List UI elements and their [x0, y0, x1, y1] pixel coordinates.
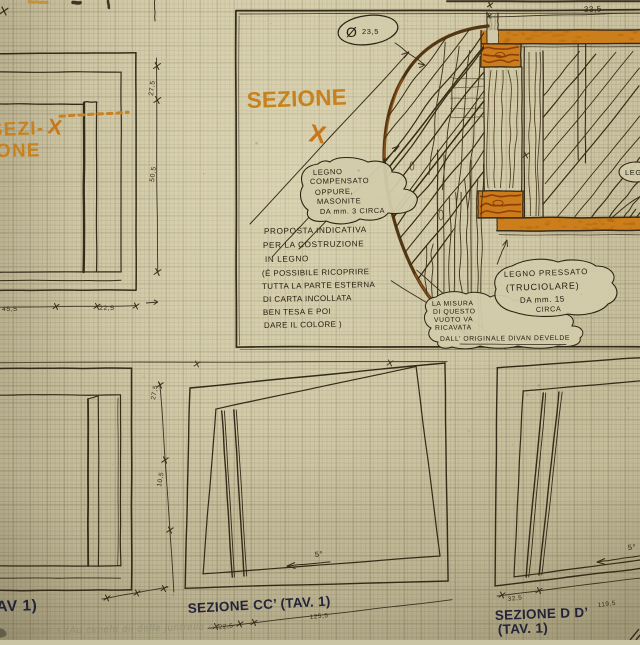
svg-text:IN LEGNO: IN LEGNO — [265, 254, 309, 264]
svg-text:DA mm. 3 CIRCA: DA mm. 3 CIRCA — [320, 206, 385, 216]
svg-text:LEG: LEG — [625, 168, 640, 177]
svg-text:ONE: ONE — [0, 140, 41, 162]
svg-text:Ø: Ø — [346, 24, 358, 40]
svg-text:DARE IL COLORE ): DARE IL COLORE ) — [264, 320, 342, 330]
svg-text:DALL’ ORIGINALE DIVAN DEVELDE: DALL’ ORIGINALE DIVAN DEVELDE — [440, 335, 570, 343]
svg-text:5°: 5° — [315, 549, 324, 559]
svg-text:SEZIONE: SEZIONE — [246, 85, 347, 113]
svg-text:23,5: 23,5 — [362, 27, 379, 36]
svg-text:RICAVATA: RICAVATA — [435, 324, 472, 332]
svg-text:5°: 5° — [628, 542, 637, 552]
svg-text:33,5: 33,5 — [584, 4, 602, 14]
svg-text:BEN TESA E POI: BEN TESA E POI — [263, 307, 331, 317]
svg-text:DI CARTA INCOLLATA: DI CARTA INCOLLATA — [263, 293, 352, 304]
svg-text:MASONITE: MASONITE — [317, 196, 362, 206]
svg-text:PER LA COSTRUZIONE: PER LA COSTRUZIONE — [263, 239, 364, 250]
svg-text:LA MISURA: LA MISURA — [432, 300, 474, 308]
svg-text:22,5: 22,5 — [99, 305, 115, 312]
svg-text:LEGNO: LEGNO — [313, 167, 343, 177]
svg-text:(É POSSIBILE RICOPRIRE: (É POSSIBILE RICOPRIRE — [262, 267, 370, 278]
svg-text:45,5: 45,5 — [2, 306, 18, 313]
svg-text:(TAV. 1): (TAV. 1) — [498, 620, 549, 637]
svg-text:VUOTO VA: VUOTO VA — [434, 316, 473, 324]
svg-text:CIRCA: CIRCA — [536, 304, 562, 314]
svg-text:PROPOSTA INDICATIVA: PROPOSTA INDICATIVA — [264, 225, 367, 236]
svg-text:OPPURE,: OPPURE, — [315, 187, 354, 197]
svg-text:COMPENSATO: COMPENSATO — [310, 176, 369, 186]
svg-text:DI QUESTO: DI QUESTO — [433, 308, 476, 316]
svg-text:(TAV 1): (TAV 1) — [0, 597, 38, 616]
